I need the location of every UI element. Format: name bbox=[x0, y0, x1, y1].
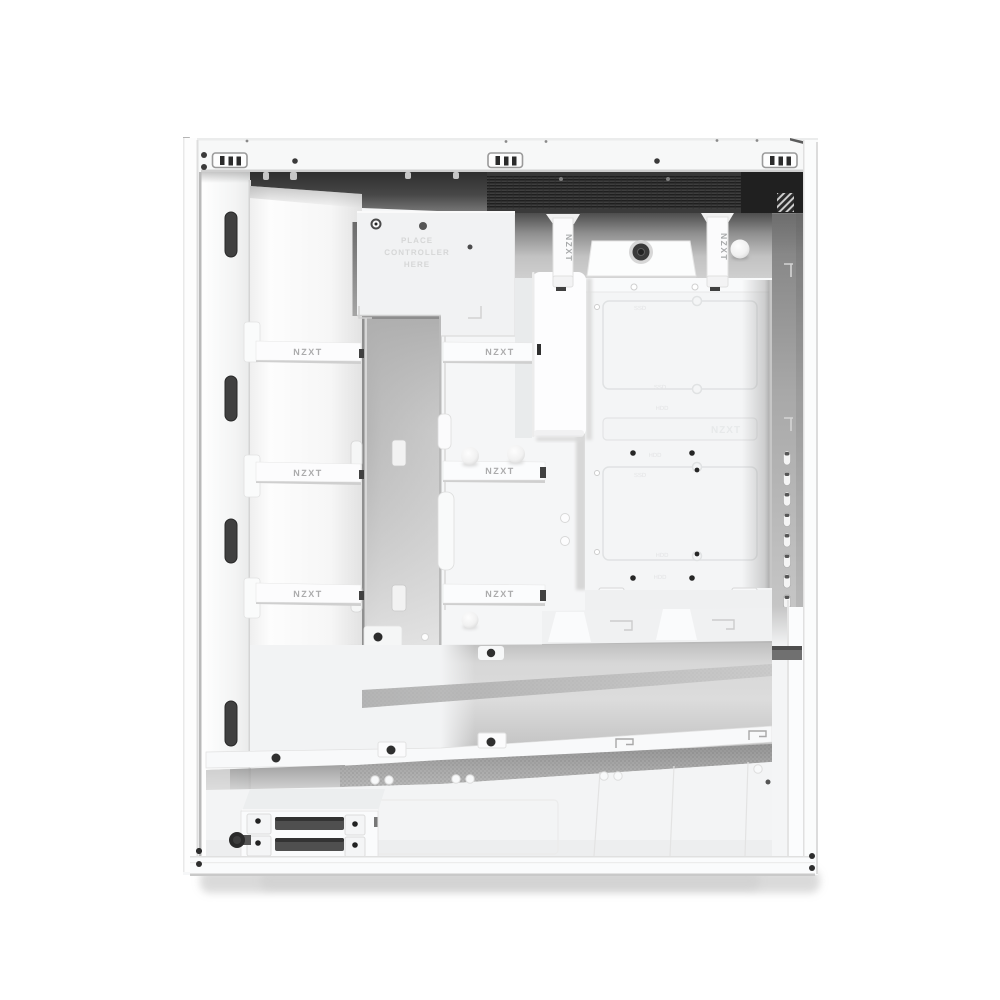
svg-text:SSD: SSD bbox=[634, 472, 647, 479]
svg-text:NZXT: NZXT bbox=[293, 347, 323, 357]
svg-text:NZXT: NZXT bbox=[293, 589, 323, 599]
svg-text:CONTROLLER: CONTROLLER bbox=[384, 248, 450, 257]
svg-text:HDD: HDD bbox=[649, 452, 663, 459]
svg-text:NZXT: NZXT bbox=[485, 466, 515, 476]
svg-text:NZXT: NZXT bbox=[711, 425, 741, 436]
svg-text:SSD: SSD bbox=[634, 305, 647, 312]
svg-text:HERE: HERE bbox=[404, 260, 430, 269]
svg-text:PLACE: PLACE bbox=[401, 236, 433, 245]
svg-text:NZXT: NZXT bbox=[485, 589, 515, 599]
svg-text:NZXT: NZXT bbox=[485, 347, 515, 357]
svg-text:NZXT: NZXT bbox=[719, 233, 729, 261]
svg-text:SSD: SSD bbox=[654, 384, 667, 391]
svg-text:HDD: HDD bbox=[656, 552, 670, 559]
svg-text:NZXT: NZXT bbox=[564, 234, 574, 262]
svg-text:NZXT: NZXT bbox=[293, 468, 323, 478]
svg-text:HDD: HDD bbox=[654, 574, 668, 581]
svg-text:HDD: HDD bbox=[656, 405, 670, 412]
